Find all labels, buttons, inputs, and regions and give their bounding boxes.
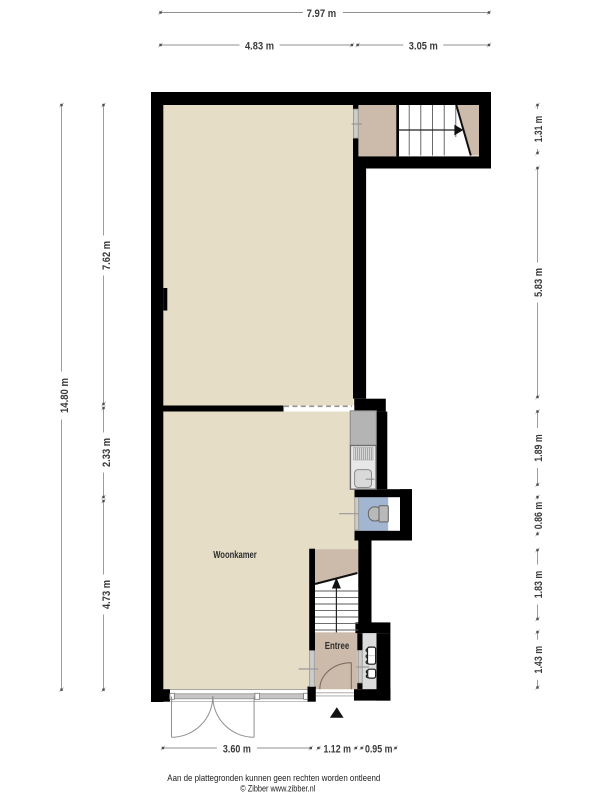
svg-text:1.12 m: 1.12 m <box>323 743 351 755</box>
svg-text:3.60 m: 3.60 m <box>223 743 251 755</box>
svg-text:4.83 m: 4.83 m <box>245 40 274 52</box>
svg-text:Aan de plattegronden kunnen ge: Aan de plattegronden kunnen geen rechten… <box>167 773 380 784</box>
svg-text:© Zibber www.zibber.nl: © Zibber www.zibber.nl <box>240 784 315 795</box>
svg-text:1.83 m: 1.83 m <box>533 571 545 599</box>
svg-text:5.83 m: 5.83 m <box>533 268 545 297</box>
svg-text:3.05 m: 3.05 m <box>409 40 438 52</box>
svg-text:14.80 m: 14.80 m <box>59 378 71 413</box>
svg-text:7.97 m: 7.97 m <box>307 8 337 20</box>
svg-text:0.95 m: 0.95 m <box>365 743 393 755</box>
svg-text:Woonkamer: Woonkamer <box>213 550 257 561</box>
svg-text:7.62 m: 7.62 m <box>101 241 113 270</box>
svg-text:1.89 m: 1.89 m <box>533 434 545 462</box>
svg-text:4.73 m: 4.73 m <box>101 580 113 609</box>
svg-text:Entree: Entree <box>325 641 350 652</box>
svg-text:1.43 m: 1.43 m <box>533 646 545 674</box>
svg-text:0.86 m: 0.86 m <box>533 502 545 530</box>
svg-text:2.33 m: 2.33 m <box>101 438 113 467</box>
svg-text:1.31 m: 1.31 m <box>533 116 545 143</box>
